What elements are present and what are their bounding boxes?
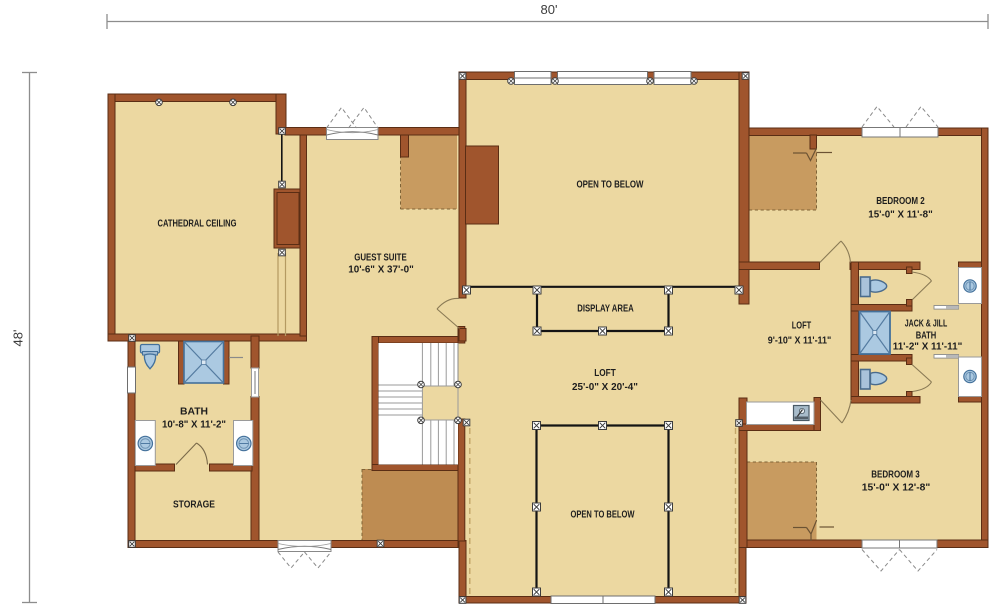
svg-text:BATH: BATH xyxy=(180,406,208,418)
svg-text:OPEN TO BELOW: OPEN TO BELOW xyxy=(571,509,635,521)
svg-text:GUEST SUITE: GUEST SUITE xyxy=(354,252,407,264)
svg-text:BEDROOM 2: BEDROOM 2 xyxy=(876,195,925,207)
svg-text:80': 80' xyxy=(541,2,558,17)
svg-text:11'-2" X 11'-11": 11'-2" X 11'-11" xyxy=(893,341,963,353)
svg-text:9'-10" X 11'-11": 9'-10" X 11'-11" xyxy=(768,335,832,347)
svg-text:DISPLAY AREA: DISPLAY AREA xyxy=(577,303,634,315)
svg-text:15'-0" X 11'-8": 15'-0" X 11'-8" xyxy=(868,209,933,221)
svg-text:JACK & JILL: JACK & JILL xyxy=(905,318,948,330)
svg-text:CATHEDRAL CEILING: CATHEDRAL CEILING xyxy=(158,218,237,230)
svg-text:STORAGE: STORAGE xyxy=(173,499,215,511)
svg-text:15'-0" X 12'-8": 15'-0" X 12'-8" xyxy=(862,482,931,494)
svg-text:BEDROOM 3: BEDROOM 3 xyxy=(871,469,920,481)
svg-text:10'-6" X 37'-0": 10'-6" X 37'-0" xyxy=(348,264,414,276)
svg-text:48': 48' xyxy=(11,330,26,347)
svg-text:OPEN TO BELOW: OPEN TO BELOW xyxy=(577,179,644,191)
svg-text:25'-0" X 20'-4": 25'-0" X 20'-4" xyxy=(572,381,638,393)
svg-text:LOFT: LOFT xyxy=(594,367,616,379)
svg-text:10'-8" X 11'-2": 10'-8" X 11'-2" xyxy=(162,419,226,431)
svg-text:LOFT: LOFT xyxy=(792,320,812,332)
